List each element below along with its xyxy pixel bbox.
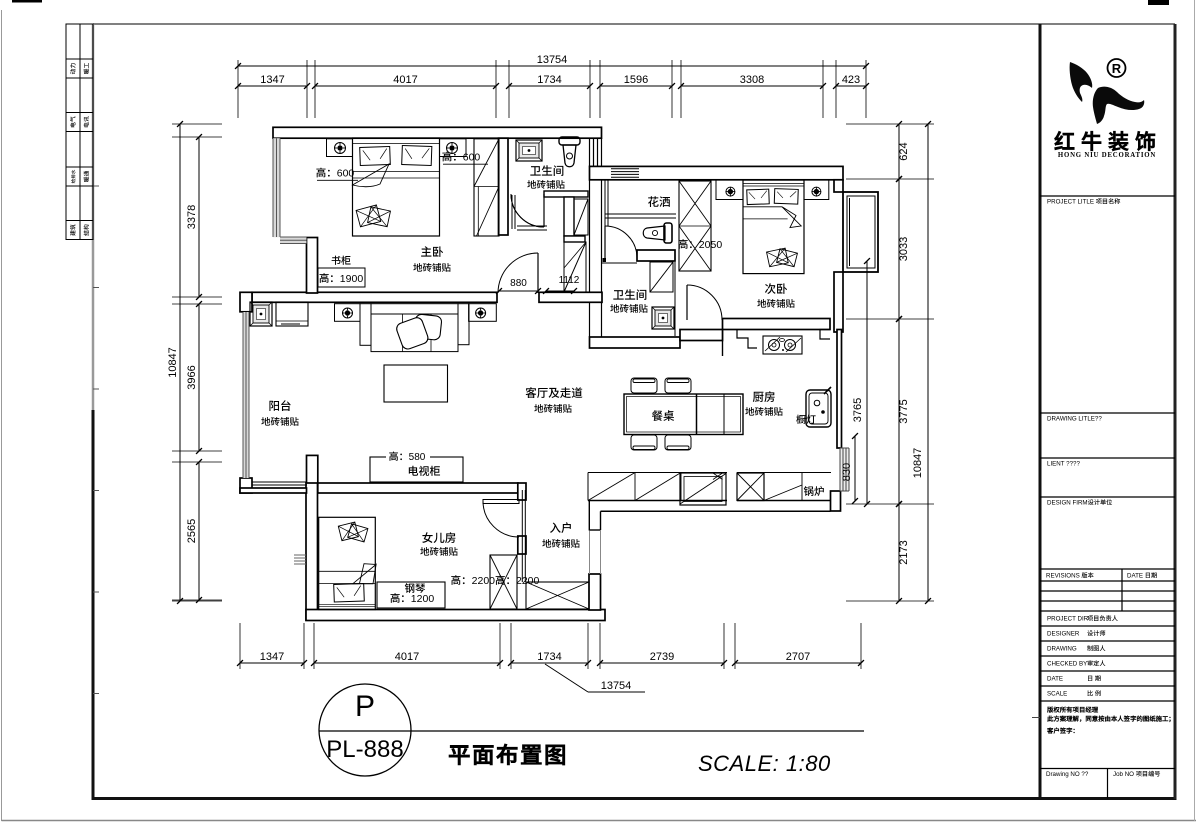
svg-text:地砖铺贴: 地砖铺贴 [542, 538, 581, 550]
svg-text:卫生间: 卫生间 [530, 165, 565, 178]
svg-text:次卧: 次卧 [765, 283, 788, 296]
svg-text:地砖铺贴: 地砖铺贴 [413, 262, 452, 274]
svg-text:10847: 10847 [167, 347, 179, 378]
svg-text:客户签字：: 客户签字： [1046, 727, 1079, 735]
svg-text:地砖铺贴: 地砖铺贴 [534, 403, 573, 415]
svg-text:红牛装饰: 红牛装饰 [1053, 130, 1162, 154]
svg-text:地砖铺贴: 地砖铺贴 [610, 303, 649, 315]
svg-text:客厅及走道: 客厅及走道 [525, 387, 583, 400]
svg-text:DATE 日期: DATE 日期 [1127, 572, 1157, 580]
svg-text:DESIGNER: DESIGNER [1047, 631, 1080, 638]
svg-text:暖通: 暖通 [82, 171, 91, 183]
svg-text:高：2200高：2200: 高：2200高：2200 [451, 575, 540, 587]
svg-text:3966: 3966 [186, 365, 198, 389]
svg-text:电讯: 电讯 [82, 116, 91, 128]
svg-text:电气: 电气 [68, 116, 77, 128]
svg-text:DRAWING LITLE??: DRAWING LITLE?? [1047, 416, 1102, 423]
svg-text:P: P [355, 690, 375, 723]
svg-text:地砖铺贴: 地砖铺贴 [745, 406, 784, 418]
svg-text:地砖铺贴: 地砖铺贴 [420, 546, 459, 558]
svg-text:PROJECT DIR: PROJECT DIR [1047, 616, 1089, 623]
svg-text:830: 830 [841, 463, 853, 481]
svg-text:餐桌: 餐桌 [652, 410, 675, 423]
svg-text:CHECKED BY: CHECKED BY [1047, 661, 1087, 668]
svg-text:R: R [1112, 61, 1122, 76]
svg-text:3775: 3775 [898, 399, 910, 423]
svg-text:4017: 4017 [395, 651, 419, 663]
svg-text:3378: 3378 [186, 205, 198, 229]
svg-text:花洒: 花洒 [648, 196, 671, 209]
svg-text:1596: 1596 [624, 74, 648, 86]
svg-text:地砖铺贴: 地砖铺贴 [757, 298, 796, 310]
svg-text:结构: 结构 [82, 224, 91, 236]
svg-text:动力: 动力 [68, 63, 77, 75]
svg-text:日 期: 日 期 [1087, 675, 1101, 683]
svg-text:卫生间: 卫生间 [613, 289, 648, 302]
svg-text:暖工: 暖工 [82, 63, 91, 75]
svg-text:平面布置图: 平面布置图 [448, 743, 568, 768]
svg-text:3033: 3033 [898, 237, 910, 261]
svg-text:2707: 2707 [786, 651, 810, 663]
svg-text:厨房: 厨房 [753, 391, 776, 404]
svg-text:高：1200: 高：1200 [390, 593, 435, 605]
svg-text:1347: 1347 [260, 74, 284, 86]
svg-text:PROJECT LITLE 项目名称: PROJECT LITLE 项目名称 [1047, 198, 1120, 206]
svg-text:1734: 1734 [537, 651, 561, 663]
svg-text:2565: 2565 [186, 519, 198, 543]
svg-text:书柜: 书柜 [331, 255, 351, 267]
svg-text:地砖铺贴: 地砖铺贴 [527, 179, 566, 191]
svg-text:PL-888: PL-888 [326, 736, 403, 763]
svg-text:4017: 4017 [393, 74, 417, 86]
svg-text:锅炉: 锅炉 [804, 486, 825, 498]
svg-text:高：600: 高：600 [316, 168, 355, 180]
svg-text:DATE: DATE [1047, 676, 1063, 683]
svg-text:橱灯: 橱灯 [796, 414, 816, 426]
svg-text:SCALE: 1:80: SCALE: 1:80 [698, 751, 831, 776]
svg-text:624: 624 [898, 142, 910, 160]
svg-text:13754: 13754 [601, 680, 632, 692]
svg-text:2739: 2739 [650, 651, 674, 663]
svg-text:3765: 3765 [852, 398, 864, 422]
svg-text:阳台: 阳台 [269, 400, 292, 413]
svg-text:高：1900: 高：1900 [319, 273, 364, 285]
svg-text:高：580: 高：580 [389, 451, 426, 463]
svg-text:3308: 3308 [740, 74, 764, 86]
svg-text:Drawing NO ??: Drawing NO ?? [1046, 771, 1089, 778]
svg-text:1112: 1112 [559, 275, 580, 286]
svg-text:SCALE: SCALE [1047, 691, 1067, 698]
svg-text:电视柜: 电视柜 [408, 465, 441, 478]
svg-text:比 例: 比 例 [1087, 690, 1101, 698]
svg-text:DESIGN FIRM设计单位: DESIGN FIRM设计单位 [1047, 499, 1112, 507]
svg-text:HONG NIU DECORATION: HONG NIU DECORATION [1058, 152, 1156, 159]
svg-text:建筑: 建筑 [68, 224, 77, 236]
svg-text:DRAWING: DRAWING [1047, 646, 1077, 653]
svg-text:2173: 2173 [898, 540, 910, 564]
svg-text:制图人: 制图人 [1087, 645, 1106, 653]
svg-text:地砖铺贴: 地砖铺贴 [261, 416, 300, 428]
svg-text:主卧: 主卧 [421, 246, 444, 259]
svg-text:1347: 1347 [260, 651, 284, 663]
svg-text:Job NO 项目编号: Job NO 项目编号 [1113, 770, 1160, 778]
svg-text:13754: 13754 [537, 54, 568, 66]
svg-text:设计师: 设计师 [1087, 630, 1106, 638]
svg-text:此方案理解，同意按由本人签字的图纸施工；: 此方案理解，同意按由本人签字的图纸施工； [1047, 715, 1175, 723]
svg-text:LIENT ????: LIENT ???? [1047, 461, 1080, 468]
svg-text:10847: 10847 [912, 448, 924, 479]
svg-text:高：600: 高：600 [442, 152, 481, 164]
svg-text:423: 423 [842, 74, 860, 86]
svg-text:项目负责人: 项目负责人 [1087, 615, 1119, 623]
svg-text:1734: 1734 [537, 74, 561, 86]
svg-text:给排水: 给排水 [71, 169, 77, 183]
svg-text:女儿房: 女儿房 [422, 532, 457, 545]
svg-text:880: 880 [510, 278, 527, 289]
svg-text:高：2050: 高：2050 [678, 239, 723, 251]
svg-text:审定人: 审定人 [1087, 660, 1106, 668]
svg-text:REVISIONS 版本: REVISIONS 版本 [1046, 572, 1094, 580]
svg-text:入户: 入户 [550, 522, 573, 535]
svg-text:版权所有项目经理: 版权所有项目经理 [1046, 706, 1099, 714]
